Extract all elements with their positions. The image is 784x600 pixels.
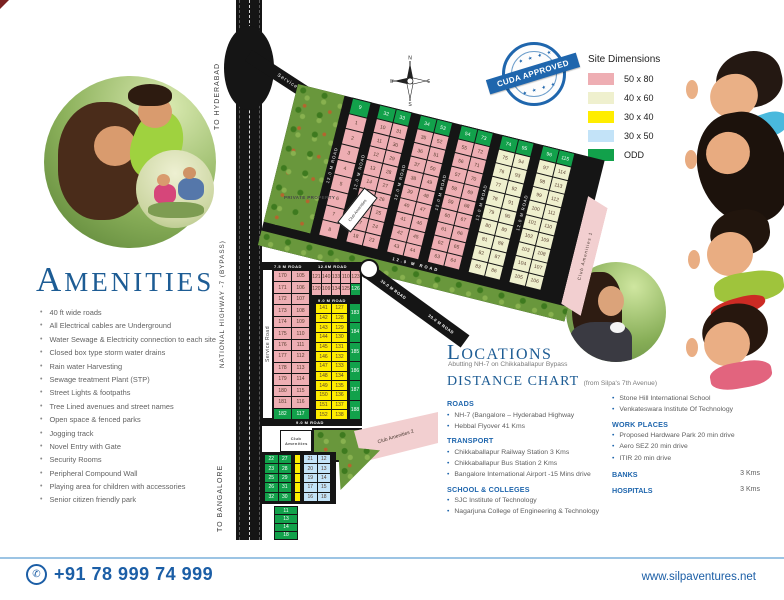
bullet-icon: • [40,308,42,317]
plot-cell: 113 [292,363,309,373]
plot-cell: 145 [316,343,331,352]
plot-cell: 133 [332,271,341,283]
bullet-icon: • [447,448,449,458]
distance-chart-heading: Distance Chart (from Silpa's 7th Avenue) [447,372,657,390]
bullet-icon: • [40,375,42,384]
plot-cell: 121 [312,271,321,283]
distance-item: •NH-7 (Bangalore – Hyderabad Highway [447,411,607,421]
kv-label: HOSPITALS [612,486,653,495]
legend-label: ODD [624,150,644,160]
plot-cell [295,474,300,482]
compass-e: E [427,79,430,85]
road-label-low: 9.0 M ROAD [296,420,324,425]
distance-item: •Hebbal Flyover 41 Kms [447,422,607,432]
plot-cell: 109 [322,284,331,296]
plot-cell: 142 [316,314,331,323]
club-amenities-1-label: Club Amenities 1 [576,231,593,281]
legend-item: 30 x 50 [588,126,708,145]
distance-item: •Proposed Hardware Park 20 min drive [612,431,777,441]
distance-item: •Chikkaballapur Railway Station 3 Kms [447,448,607,458]
plot-cell: 135 [332,381,347,390]
amenity-item: •Open space & fenced parks [40,415,245,428]
legend-swatch [588,92,614,104]
legend-swatch [588,111,614,123]
plot-cell: 105 [292,271,309,281]
distance-section-heading: TRANSPORT [447,436,607,445]
site-dimensions-legend: Site Dimensions 50 x 8040 x 6030 x 4030 … [588,54,708,164]
plot-cell: 123 [351,271,360,283]
plot-cell: 141 [316,304,331,313]
bullet-icon: • [612,442,614,452]
plot-cell [295,483,300,491]
brochure-page: Service Road TO HYDERABAD NATIONAL HIGHW… [0,0,784,600]
private-property-label: PRIVATE PROPERTY [284,195,335,200]
distance-chart-subtitle: (from Silpa's 7th Avenue) [584,380,657,387]
amenities-title: Amenities [36,260,214,300]
amenities-list: •40 ft wide roads•All Electrical cables … [40,308,245,509]
locations-subtitle: Abutting NH-7 on Chikkaballapur Bypass [448,361,567,368]
tail-green-plots: 11131418 [274,506,298,540]
plot-cell: 17 [304,483,317,491]
plot-cell: 177 [274,351,291,361]
plot-cell: 117 [292,409,309,419]
plot-cell: 178 [274,363,291,373]
photo-family-grass [136,150,214,228]
amenity-item: •Rain water Harvesting [40,362,245,375]
distance-item: •Stone Hill International School [612,394,777,404]
plot-cell: 179 [274,374,291,384]
distance-item: •Venkateswara Institute Of Technology [612,405,777,415]
distance-chart-title: Distance Chart [447,374,579,389]
plot-cell: 11 [275,507,297,514]
plot-cell: 115 [292,386,309,396]
plot-cell: 32 [265,493,278,501]
plot-cell: 114 [292,374,309,384]
plot-cell: 110 [341,271,350,283]
plot-cell: 125 [341,284,350,296]
phone-number: +91 78 999 74 999 [54,564,213,585]
diagonal-road-label-2: 30.0 M ROAD [427,313,455,335]
plot-cell [295,464,300,472]
legend-swatch [588,130,614,142]
plot-cell: 136 [332,391,347,400]
plot-cell: 28 [279,464,292,472]
plot-cell: 143 [316,323,331,332]
roundabout [359,259,379,279]
plot-cell: 20 [304,464,317,472]
distance-section-heading: WORK PLACES [612,420,777,429]
bullet-icon: • [612,431,614,441]
amenity-item: •Security Rooms [40,455,245,468]
bullet-icon: • [40,429,42,438]
plot-cell: 23 [265,464,278,472]
bullet-icon: • [447,411,449,421]
bottom-plot-cluster: 22272328252926313230 2112201319141715161… [262,452,336,504]
cluster-green-plots: 22272328252926313230 [264,454,292,502]
plot-cell: 152 [316,410,331,419]
club-amenities-2-label: Club Amenities 2 [377,429,415,446]
distance-chart-left-column: ROADS•NH-7 (Bangalore – Hyderabad Highwa… [447,394,607,519]
bullet-icon: • [447,507,449,517]
plot-cell: 106 [525,273,543,289]
plot-cell: 26 [265,483,278,491]
legend-item: 40 x 60 [588,88,708,107]
lower-green-plots: 183184185186187188 [349,303,361,420]
service-road-strip: Service Road [263,270,272,418]
plot-cell: 174 [274,317,291,327]
plot-cell: 132 [332,352,347,361]
bullet-icon: • [40,415,42,424]
legend-label: 30 x 40 [624,112,654,122]
plot-cell: 16 [304,493,317,501]
distance-section-heading: ROADS [447,399,607,408]
bullet-icon: • [40,482,42,491]
compass-n: N [408,56,412,62]
legend-title: Site Dimensions [588,54,708,65]
road-label-75: 7.5 M ROAD [274,264,302,269]
corner-mark [0,0,9,9]
plot-cell [295,493,300,501]
plot-cell: 185 [350,343,360,361]
amenity-item: •All Electrical cables are Underground [40,321,245,334]
club-amenities-box: Club Amenities [280,430,312,452]
plot-cell: 146 [316,352,331,361]
plot-cell: 172 [274,294,291,304]
cuda-approved-badge: ★ ★ ★ ★ CUDA APPROVED ★ ★ ★ ★ [484,40,580,108]
footer-phone[interactable]: ✆ +91 78 999 74 999 [26,564,213,585]
distance-item: •SJC Institute of Technology [447,496,607,506]
bullet-icon: • [447,422,449,432]
plot-cell: 128 [332,314,347,323]
plot-cell: 12 [318,455,331,463]
plot-cell: 134 [332,372,347,381]
service-road-strip-label: Service Road [265,326,271,362]
plot-cell: 25 [265,474,278,482]
amenity-item: •Street Lights & footpaths [40,388,245,401]
compass-rose: N S W E [390,55,430,107]
amenity-item: •Peripheral Compound Wall [40,469,245,482]
plot-cell: 147 [316,362,331,371]
footer-divider [0,557,784,559]
bullet-icon: • [40,388,42,397]
plot-cell: 186 [350,362,360,380]
plot-cell: 181 [274,397,291,407]
plot-cell: 13 [275,515,297,522]
plot-cell: 151 [316,401,331,410]
distance-section-heading: SCHOOL & COLLEGES [447,485,607,494]
legend-label: 40 x 60 [624,93,654,103]
plot-cell: 19 [304,474,317,482]
plot-cell: 171 [274,282,291,292]
plot-cell: 21 [304,455,317,463]
amenity-item: •Novel Entry with Gate [40,442,245,455]
plot-cell: 120 [312,284,321,296]
legend-label: 50 x 80 [624,74,654,84]
bullet-icon: • [447,496,449,506]
plot-cell: 8 [319,220,340,239]
club-amenities-box-label: Club Amenities [285,436,307,446]
cluster-blue-plots: 21122013191417151618 [303,454,331,502]
bullet-icon: • [40,402,42,411]
plot-cell: 14 [318,474,331,482]
plot-cell: 182 [274,409,291,419]
plot-cell: 13 [318,464,331,472]
legend-item: ODD [588,145,708,164]
road-label-mid: 9.0 M ROAD [318,298,346,303]
lower-mini-plots: 121140133110123120109134125126 [311,270,361,296]
plot-cell: 111 [292,340,309,350]
compass-s: S [408,102,412,107]
plot-cell: 187 [350,381,360,399]
plot-cell: 134 [332,284,341,296]
plot-cell: 150 [316,391,331,400]
legend-swatch [588,73,614,85]
plot-cell [295,455,300,463]
plot-cell: 176 [274,340,291,350]
distance-chart-right-column: •Stone Hill International School•Venkate… [612,394,777,495]
plot-cell: 131 [332,343,347,352]
bullet-icon: • [40,362,42,371]
to-hyderabad-label: TO HYDERABAD [214,30,221,130]
bullet-icon: • [447,470,449,480]
plot-cell: 149 [316,381,331,390]
plot-cell: 138 [332,410,347,419]
plot-cell: 108 [292,305,309,315]
plot-cell: 30 [279,493,292,501]
plot-cell: 14 [275,524,297,531]
cluster-park-triangle [338,446,380,490]
bullet-icon: • [612,405,614,415]
bullet-icon: • [447,459,449,469]
bullet-icon: • [612,394,614,404]
plot-cell: 188 [350,401,360,419]
plot-cell: 112 [292,351,309,361]
legend-label: 30 x 50 [624,131,654,141]
bullet-icon: • [612,454,614,464]
amenity-item: •Sewage treatment Plant (STP) [40,375,245,388]
amenity-item: •Senior citizen friendly park [40,495,245,508]
bullet-icon: • [40,442,42,451]
plot-cell: 116 [292,397,309,407]
amenity-item: •Jogging track [40,429,245,442]
plot-cell: 133 [332,362,347,371]
plot-cell: 183 [350,304,360,322]
plot-cell: 144 [316,333,331,342]
plot-cell: 127 [332,304,347,313]
plot-cell: 107 [292,294,309,304]
amenity-item: •40 ft wide roads [40,308,245,321]
plot-cell: 31 [279,483,292,491]
distance-item: •Nagarjuna College of Engineering & Tech… [447,507,607,517]
phone-icon: ✆ [26,564,47,585]
bullet-icon: • [40,469,42,478]
bullet-icon: • [40,348,42,357]
plot-cell: 180 [274,386,291,396]
plot-cell: 110 [292,328,309,338]
plot-cell: 126 [351,284,360,296]
plot-cell: 18 [275,532,297,539]
bullet-icon: • [40,335,42,344]
amenity-item: •Tree Lined avenues and street names [40,402,245,415]
bullet-icon: • [40,321,42,330]
bullet-icon: • [40,455,42,464]
plot-cell: 170 [274,271,291,281]
plot-cell: 29 [279,474,292,482]
legend-item: 30 x 40 [588,107,708,126]
plot-cell: 137 [332,401,347,410]
plot-cell: 175 [274,328,291,338]
distance-item: •Chikkaballapur Bus Station 2 Kms [447,459,607,469]
kv-value: 3 Kms [740,486,760,495]
compass-w: W [390,79,394,85]
footer-website[interactable]: www.silpaventures.net [642,571,756,583]
plot-cell: 140 [322,271,331,283]
plot-cell: 148 [316,372,331,381]
amenity-item: •Closed box type storm water drains [40,348,245,361]
plot-cell: 27 [279,455,292,463]
kv-value: 3 Kms [740,470,760,479]
distance-item: •Aero SEZ 20 min drive [612,442,777,452]
legend-item: 50 x 80 [588,69,708,88]
kv-label: BANKS [612,470,638,479]
distance-item: •Bangalore International Airport -15 Min… [447,470,607,480]
bullet-icon: • [40,495,42,504]
cluster-yellow-strip [294,454,301,502]
road-label-120: 12.0M ROAD [318,264,347,269]
plot-cell: 129 [332,323,347,332]
amenity-item: •Playing area for children with accessor… [40,482,245,495]
plot-cell: 184 [350,323,360,341]
lower-pink-plots: 1701051711061721071731081741091751101761… [273,270,310,420]
plot-cell: 22 [265,455,278,463]
distance-kv-row: HOSPITALS3 Kms [612,486,760,495]
plot-cell: 109 [292,317,309,327]
lower-yellow-plots: 1411271421281431291441301451311461321471… [315,303,348,420]
plot-cell: 106 [292,282,309,292]
distance-item: •ITIR 20 min drive [612,454,777,464]
diagonal-road-label: 30.0 M ROAD [380,278,408,300]
plot-cell: 15 [318,483,331,491]
amenity-item: •Water Sewage & Electricity connection t… [40,335,245,348]
distance-kv-row: BANKS3 Kms [612,470,760,479]
plot-cell: 18 [318,493,331,501]
plot-cell: 173 [274,305,291,315]
lower-plot-block: 7.5 M ROAD 12.0M ROAD Service Road 17010… [262,262,362,426]
plot-cell: 130 [332,333,347,342]
